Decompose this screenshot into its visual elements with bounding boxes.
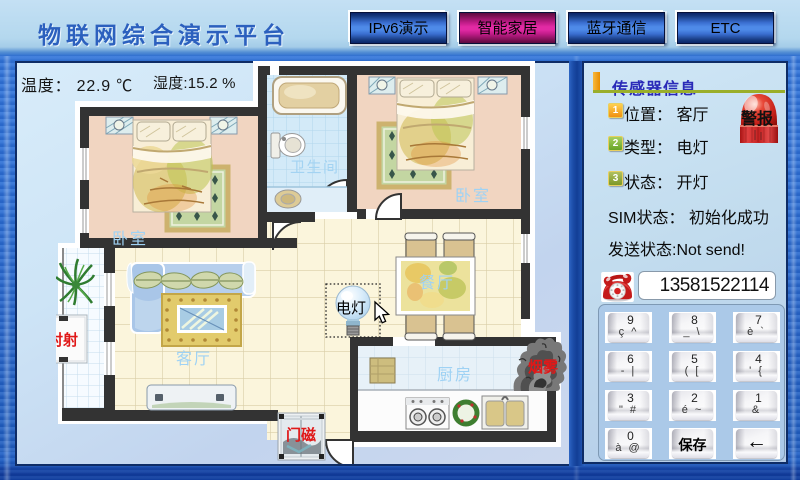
svg-text:烟雾: 烟雾: [528, 358, 559, 376]
svg-text:客厅: 客厅: [176, 350, 212, 368]
svg-text:卧室: 卧室: [455, 187, 491, 205]
svg-text:卫生间: 卫生间: [290, 159, 340, 176]
svg-text:对射: 对射: [56, 331, 78, 349]
svg-text:餐厅: 餐厅: [419, 274, 455, 292]
svg-text:门磁: 门磁: [286, 426, 316, 444]
svg-text:卧室: 卧室: [112, 230, 148, 248]
svg-text:厨房: 厨房: [437, 366, 473, 384]
svg-text:电灯: 电灯: [336, 300, 366, 317]
svg-text:警报: 警报: [740, 109, 773, 128]
